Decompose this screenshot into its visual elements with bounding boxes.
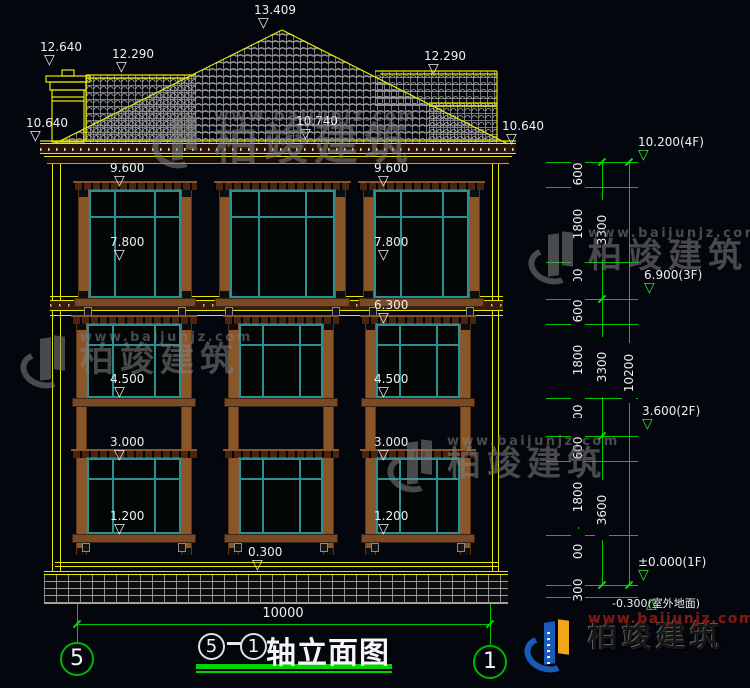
window-head-cornice <box>71 315 197 324</box>
plinth-brick-base <box>44 574 508 604</box>
dim-tick-line <box>546 162 638 163</box>
title-axis-start: 5 <box>198 633 225 660</box>
window-sill <box>224 398 338 407</box>
window-pilaster <box>335 190 346 298</box>
triangle-down-icon <box>44 54 55 66</box>
window-head-cornice <box>73 181 197 190</box>
watermark-logo-icon <box>393 440 439 492</box>
dim-segment-label: 300 <box>571 560 585 620</box>
company-logo-icon <box>530 620 576 672</box>
base-trim-line1 <box>55 562 498 563</box>
triangle-down-icon <box>30 130 41 142</box>
window-transom <box>241 478 321 480</box>
triangle-down-icon <box>638 149 649 161</box>
window-pilaster <box>469 190 480 298</box>
window-sill <box>215 298 350 307</box>
watermark-logo-icon <box>158 116 204 168</box>
triangle-down-icon <box>114 523 125 535</box>
triangle-down-icon <box>378 386 389 398</box>
sill-bracket <box>371 543 379 552</box>
window-head-cornice <box>223 449 339 458</box>
window-mullion <box>154 192 156 296</box>
axis-line-1 <box>490 604 491 647</box>
window-transom <box>91 216 179 218</box>
dim-tick-line <box>546 299 638 300</box>
window-mullion <box>262 326 264 396</box>
window-pilaster <box>219 190 230 298</box>
window <box>239 458 323 534</box>
window-head-cornice <box>214 181 351 190</box>
window-transom <box>241 344 321 346</box>
dim-tick-line <box>546 187 638 188</box>
window-mullion <box>299 326 301 396</box>
dim-total-label: 10200 <box>622 343 636 403</box>
sill-bracket <box>234 543 242 552</box>
dim-tick-line <box>546 535 638 536</box>
triangle-down-icon <box>378 249 389 261</box>
dim-segment-label: 1800 <box>571 330 585 390</box>
elevation-drawing-canvas: -0.300(室外地面) 10000 5 1 5 1 轴立面图 柏竣建筑 www… <box>0 0 750 688</box>
dim-tick-line <box>546 585 638 586</box>
window-transom <box>376 216 467 218</box>
dim-tier-label: 3300 <box>595 337 609 397</box>
window-head-cornice <box>223 315 339 324</box>
window-sill <box>72 534 196 543</box>
window-sill <box>72 398 196 407</box>
axis-bubble-5: 5 <box>60 642 94 676</box>
window-transom <box>89 478 179 480</box>
window-mullion <box>305 192 307 296</box>
triangle-down-icon <box>258 17 269 29</box>
window-pilaster <box>363 190 374 298</box>
triangle-down-icon <box>506 133 517 145</box>
sill-bracket <box>82 543 90 552</box>
triangle-down-icon <box>114 175 125 187</box>
triangle-down-icon <box>428 63 439 75</box>
axis-bubble-1: 1 <box>473 645 507 679</box>
width-dim-label: 10000 <box>243 606 323 621</box>
title-dash-icon <box>227 642 241 645</box>
triangle-down-icon <box>378 175 389 187</box>
triangle-down-icon <box>114 249 125 261</box>
wall-right-inner <box>492 164 493 572</box>
window-head-cornice <box>71 449 197 458</box>
triangle-down-icon <box>378 312 389 324</box>
title-axis-end: 1 <box>240 633 267 660</box>
triangle-down-icon <box>638 569 649 581</box>
window-mullion <box>154 460 156 532</box>
window-mullion <box>262 460 264 532</box>
window-transom <box>232 216 333 218</box>
window-mullion <box>442 192 444 296</box>
base-trim-line2 <box>55 566 498 567</box>
width-dim-line <box>77 624 491 625</box>
triangle-down-icon <box>644 282 655 294</box>
sill-bracket <box>457 543 465 552</box>
watermark-logo-icon <box>26 336 72 388</box>
triangle-down-icon <box>116 61 127 73</box>
window <box>230 190 335 298</box>
triangle-down-icon <box>378 449 389 461</box>
triangle-down-icon <box>252 559 263 571</box>
window-mullion <box>299 460 301 532</box>
watermark-logo-icon <box>534 232 580 284</box>
title-text: 轴立面图 <box>266 628 390 672</box>
sill-bracket <box>320 543 328 552</box>
window-mullion <box>436 326 438 396</box>
window-pilaster <box>78 190 89 298</box>
window-transom <box>378 344 458 346</box>
window-sill <box>224 534 338 543</box>
dim-tick-line <box>546 324 638 325</box>
window-pilaster <box>323 323 334 555</box>
triangle-down-icon <box>114 449 125 461</box>
triangle-down-icon <box>642 418 653 430</box>
wall-right-outer <box>498 164 499 572</box>
window-pilaster <box>181 190 192 298</box>
dim-tier-label: 3600 <box>595 480 609 540</box>
window-mullion <box>258 192 260 296</box>
triangle-down-icon <box>114 386 125 398</box>
sill-bracket <box>178 543 186 552</box>
triangle-down-icon <box>378 523 389 535</box>
window-sill <box>74 298 196 307</box>
plinth-top-edge <box>44 571 508 572</box>
drawing-title: 5 1 轴立面图 <box>194 628 404 672</box>
